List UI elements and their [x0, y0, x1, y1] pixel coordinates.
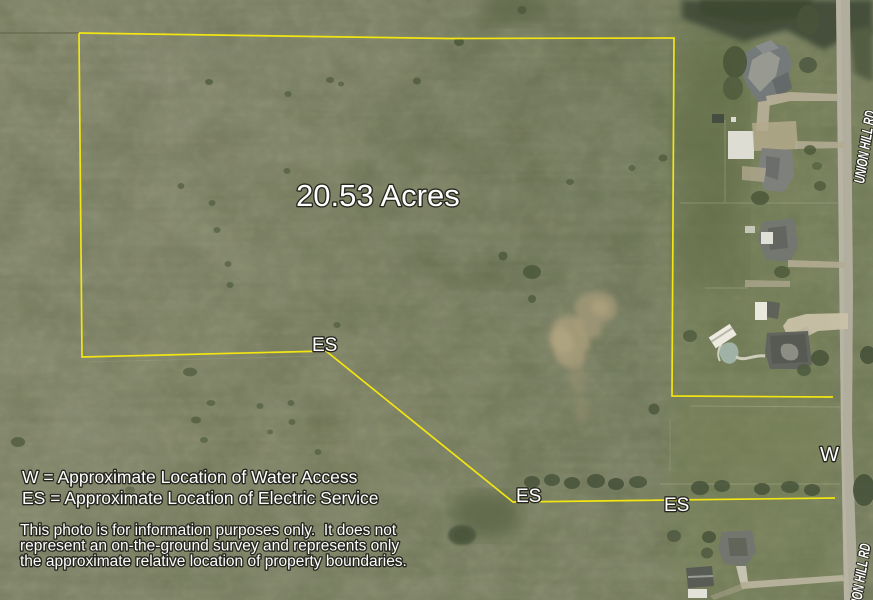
- svg-text:the approximate relative locat: the approximate relative location of pro…: [20, 553, 407, 570]
- svg-text:W = Approximate Location of Wa: W = Approximate Location of Water Access: [22, 467, 358, 487]
- svg-text:20.53 Acres: 20.53 Acres: [296, 178, 460, 213]
- svg-text:ES: ES: [312, 335, 337, 356]
- svg-text:W: W: [820, 444, 839, 466]
- svg-text:represent an on-the-ground sur: represent an on-the-ground survey and re…: [20, 538, 399, 555]
- svg-text:ES = Approximate Location of E: ES = Approximate Location of Electric Se…: [22, 488, 379, 508]
- svg-text:ES: ES: [664, 495, 689, 516]
- svg-text:This photo is for information: This photo is for information purposes o…: [20, 522, 397, 539]
- svg-text:ES: ES: [516, 486, 541, 507]
